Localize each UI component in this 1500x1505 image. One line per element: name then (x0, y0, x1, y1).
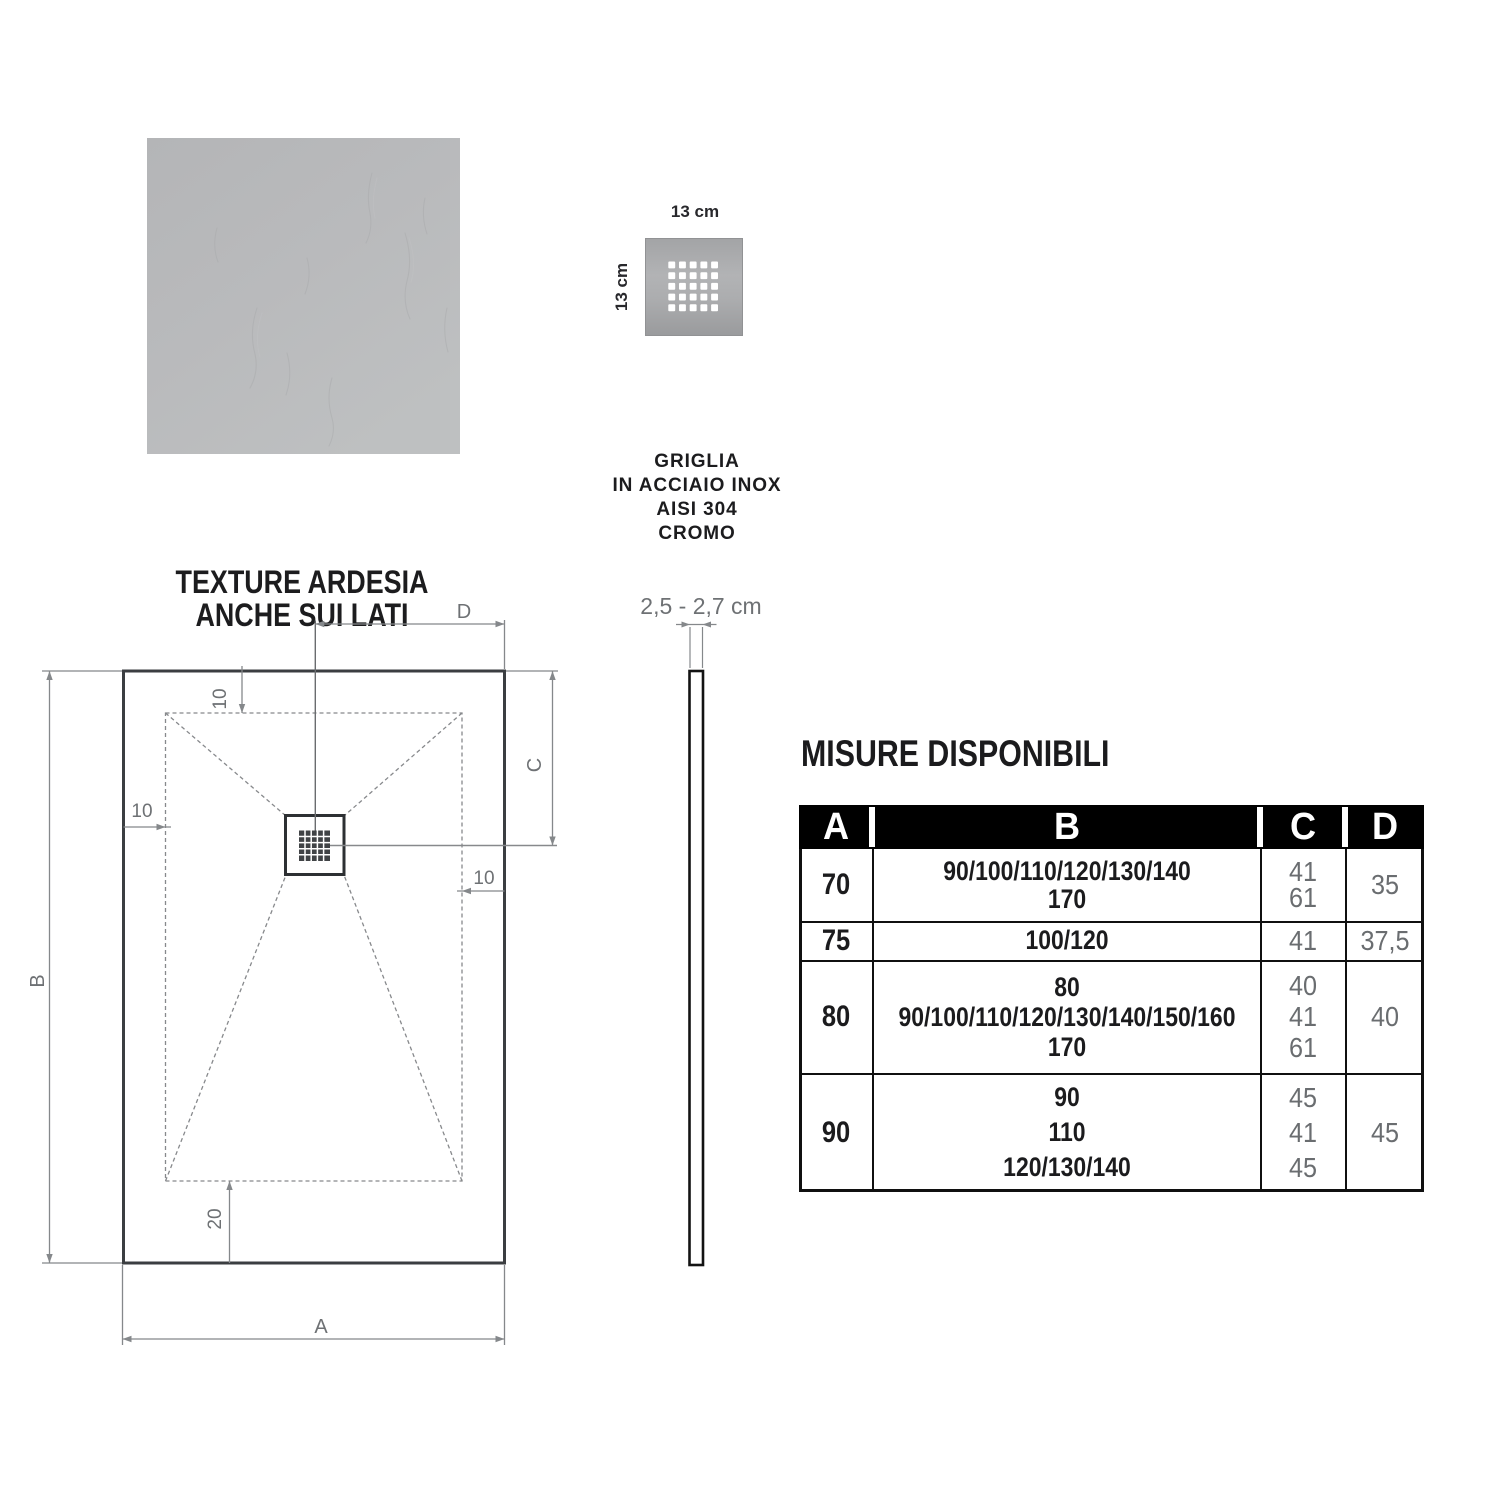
svg-text:A: A (314, 1316, 328, 1338)
svg-text:10: 10 (473, 868, 494, 889)
svg-text:2,5 - 2,7 cm: 2,5 - 2,7 cm (640, 593, 761, 619)
svg-text:10: 10 (210, 688, 231, 709)
svg-text:D: D (457, 601, 471, 623)
svg-text:20: 20 (205, 1208, 226, 1229)
svg-text:B: B (27, 974, 49, 987)
svg-text:10: 10 (131, 801, 152, 822)
svg-text:C: C (524, 758, 546, 772)
